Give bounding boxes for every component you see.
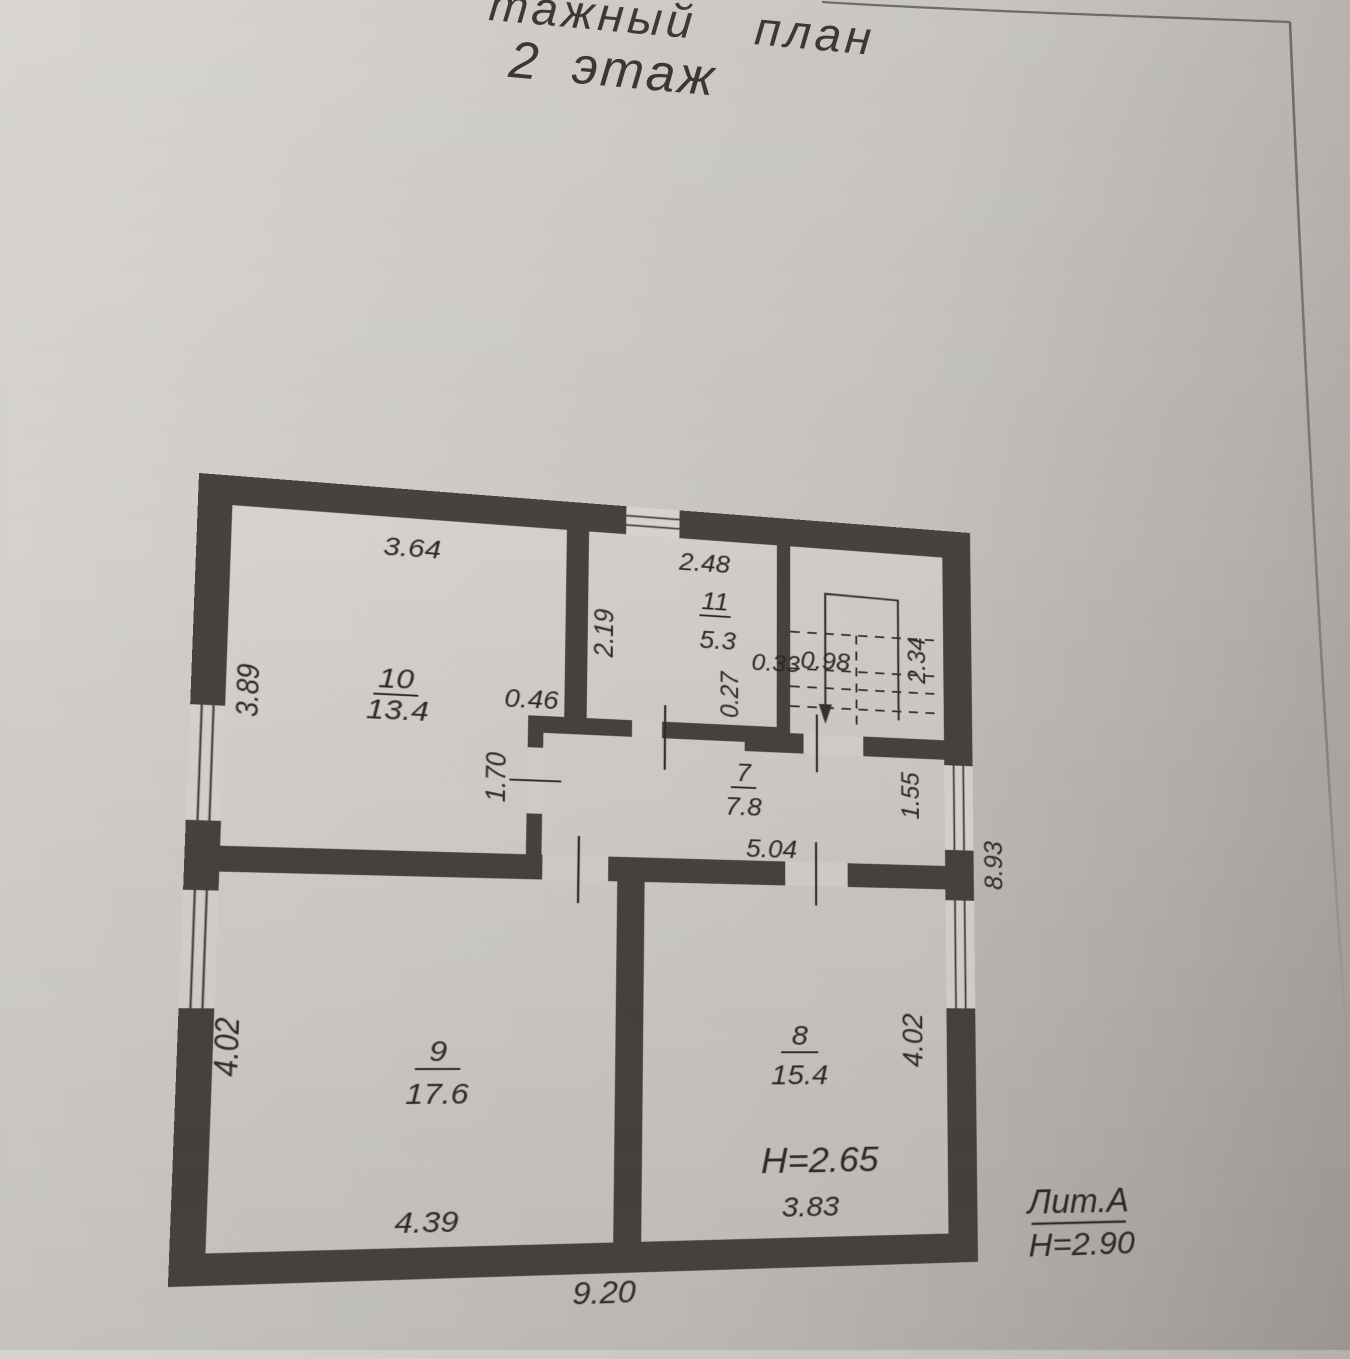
wall-room11-stairs: [777, 545, 791, 744]
wall-room9-room8: [613, 881, 644, 1242]
dim-room7-depth: 1.55: [895, 771, 924, 819]
dim-door-opening: 1.70: [479, 751, 512, 802]
scanned-floor-plan-photo: { "title": { "line1": "тажный план", "li…: [0, 0, 1350, 1350]
dim-room7-width: 5.04: [746, 834, 797, 864]
door-opening-room11: [632, 720, 662, 738]
dim-room10-width: 3.64: [383, 531, 441, 564]
window-corridor: [944, 765, 973, 851]
dim-room10-depth: 3.89: [230, 663, 267, 718]
window-room10: [186, 704, 225, 821]
door-tick-room9: [578, 836, 579, 903]
room11-area: 5.3: [699, 625, 736, 655]
door-tick-room11: [665, 705, 666, 770]
room9-area: 17.6: [405, 1077, 470, 1111]
dim-room9-width: 4.39: [394, 1205, 459, 1240]
window-top: [626, 506, 679, 538]
room8-ceiling-height: H=2.65: [761, 1141, 879, 1182]
window-room8: [945, 900, 975, 1008]
dim-house-width: 9.20: [572, 1275, 636, 1311]
dim-room8-depth: 4.02: [897, 1013, 929, 1067]
dim-stair-well: 0.98: [800, 646, 850, 676]
dim-step-width: 0.33: [751, 648, 800, 677]
dim-room11-depth: 2.19: [588, 608, 619, 659]
dim-step-depth: 0.27: [715, 670, 744, 718]
litera-label: Лит.А: [1025, 1182, 1129, 1222]
room10-area: 13.4: [366, 693, 429, 728]
room9-number: 9: [429, 1035, 448, 1068]
floor-plan-drawing: 10 13.4 11 5.3 7 7.8 9 17.6 8 15.4 3.64 …: [165, 473, 1171, 1359]
frame-right-line: [1290, 22, 1348, 1060]
room11-number: 11: [701, 587, 728, 616]
dim-house-depth: 8.93: [979, 840, 1008, 890]
dim-stair-depth: 2.34: [902, 636, 930, 685]
frame-top-line: [822, 2, 1290, 22]
litera-annotation: Лит.А H=2.90: [1025, 1182, 1135, 1264]
dim-wall-jog: 0.46: [504, 683, 559, 714]
floor-plan: 10 13.4 11 5.3 7 7.8 9 17.6 8 15.4 3.64 …: [165, 473, 1171, 1359]
room7-number: 7: [736, 758, 752, 787]
room7-area: 7.8: [725, 792, 762, 821]
window-room9: [179, 890, 219, 1009]
dim-room8-width: 3.83: [782, 1190, 840, 1223]
room8-area: 15.4: [771, 1059, 828, 1091]
wall-room10-room11: [564, 530, 589, 718]
door-opening-room9: [542, 855, 608, 881]
room8-number: 8: [792, 1020, 809, 1051]
room10-number: 10: [378, 662, 415, 696]
door-opening-stairs: [804, 734, 864, 756]
litera-ceiling-height: H=2.90: [1028, 1224, 1135, 1264]
wall-step: [745, 726, 777, 753]
dim-room9-depth: 4.02: [206, 1017, 246, 1077]
dim-room11-width: 2.48: [678, 547, 730, 578]
